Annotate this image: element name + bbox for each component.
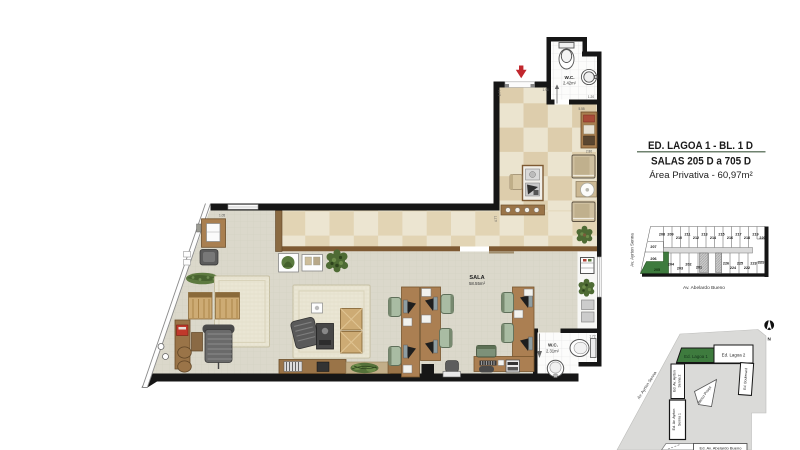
- svg-text:218: 218: [744, 236, 750, 240]
- svg-text:Ed. Lagoa 2: Ed. Lagoa 2: [722, 353, 746, 358]
- svg-text:Ed. Lagoa 1: Ed. Lagoa 1: [684, 354, 708, 359]
- svg-text:215: 215: [718, 233, 724, 237]
- svg-text:209: 209: [667, 233, 673, 237]
- svg-text:222: 222: [744, 266, 750, 270]
- svg-text:Senna 1: Senna 1: [678, 413, 682, 426]
- svg-text:Área Privativa - 60,97m²: Área Privativa - 60,97m²: [649, 170, 753, 181]
- svg-text:208: 208: [659, 233, 665, 237]
- svg-text:4.77: 4.77: [494, 216, 498, 222]
- svg-text:1.77: 1.77: [498, 90, 502, 96]
- svg-text:Av. Ayrton Senna: Av. Ayrton Senna: [630, 233, 635, 267]
- svg-text:224: 224: [730, 266, 737, 270]
- svg-text:213: 213: [701, 233, 707, 237]
- svg-text:226: 226: [723, 262, 729, 266]
- svg-text:201: 201: [696, 266, 702, 270]
- svg-text:1.05: 1.05: [219, 214, 225, 218]
- svg-text:212: 212: [693, 236, 699, 240]
- svg-text:205: 205: [654, 268, 660, 272]
- svg-text:207: 207: [650, 245, 656, 249]
- svg-text:216: 216: [727, 236, 733, 240]
- svg-text:1.20: 1.20: [588, 95, 594, 99]
- svg-text:2.80: 2.80: [586, 150, 592, 154]
- svg-text:W.C.: W.C.: [565, 75, 575, 80]
- svg-text:203: 203: [677, 267, 683, 271]
- svg-text:Ed. Av. Ayrton: Ed. Av. Ayrton: [672, 409, 676, 431]
- svg-text:219: 219: [752, 233, 758, 237]
- svg-text:1.98: 1.98: [543, 88, 549, 92]
- svg-text:W.C.: W.C.: [548, 343, 558, 348]
- svg-text:5.55: 5.55: [579, 107, 585, 111]
- svg-text:58.55m²: 58.55m²: [469, 281, 486, 286]
- svg-text:221: 221: [758, 261, 764, 265]
- svg-text:225: 225: [737, 262, 743, 266]
- svg-text:2.31m²: 2.31m²: [546, 349, 560, 354]
- svg-text:Senna 2: Senna 2: [678, 374, 682, 387]
- svg-text:214: 214: [710, 236, 717, 240]
- svg-text:Av. Abelardo Bueno: Av. Abelardo Bueno: [683, 285, 725, 291]
- svg-text:SALAS 205 D a 705 D: SALAS 205 D a 705 D: [651, 155, 751, 167]
- svg-text:206: 206: [650, 257, 656, 261]
- svg-text:ED. LAGOA 1 - BL. 1 D: ED. LAGOA 1 - BL. 1 D: [648, 140, 753, 152]
- svg-text:211: 211: [685, 233, 691, 237]
- svg-text:217: 217: [735, 233, 741, 237]
- svg-text:1.72: 1.72: [589, 335, 595, 339]
- svg-text:223: 223: [750, 262, 756, 266]
- svg-text:204: 204: [668, 263, 675, 267]
- svg-text:2.42m²: 2.42m²: [563, 81, 577, 86]
- svg-text:220: 220: [759, 236, 765, 240]
- svg-text:Ed. Av. Ayrton: Ed. Av. Ayrton: [673, 370, 677, 392]
- svg-text:210: 210: [676, 236, 682, 240]
- svg-text:Ed. Av. Abelardo Bueno: Ed. Av. Abelardo Bueno: [700, 446, 743, 450]
- svg-text:202: 202: [685, 263, 691, 267]
